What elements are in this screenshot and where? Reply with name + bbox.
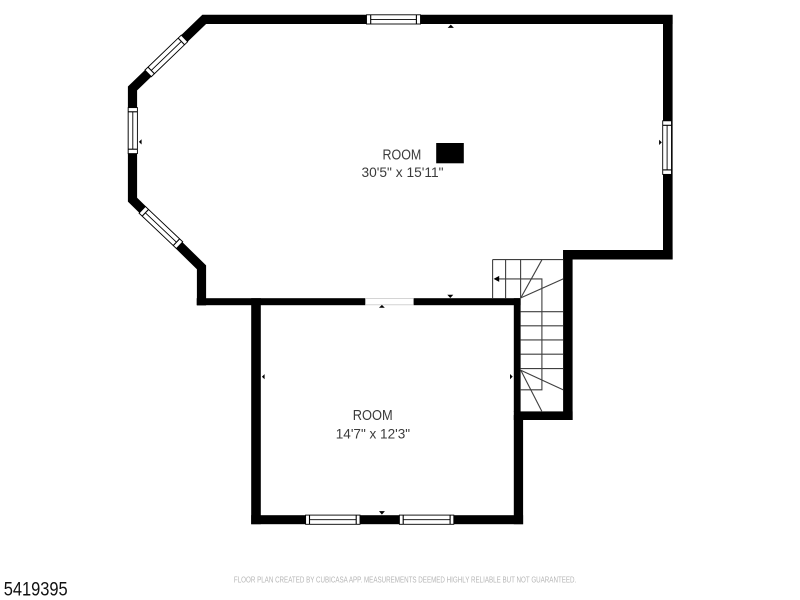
svg-text:14'7" x 12'3": 14'7" x 12'3" [336,426,410,442]
svg-text:ROOM: ROOM [383,147,422,163]
svg-text:ROOM: ROOM [353,408,393,424]
svg-text:5419395: 5419395 [4,580,68,600]
svg-text:FLOOR PLAN CREATED BY CUBICASA: FLOOR PLAN CREATED BY CUBICASA APP. MEAS… [234,575,576,584]
svg-text:30'5" x 15'11": 30'5" x 15'11" [362,165,444,181]
